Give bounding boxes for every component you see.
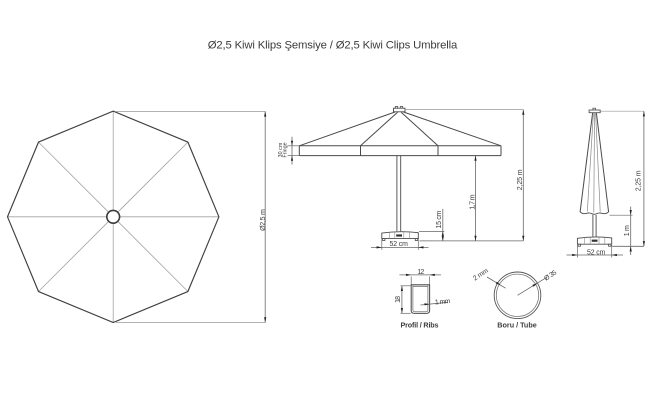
svg-text:1 mm: 1 mm (435, 298, 451, 306)
svg-text:15 cm: 15 cm (436, 211, 443, 229)
svg-text:Ø2,5 m: Ø2,5 m (260, 209, 267, 231)
svg-text:18: 18 (395, 296, 402, 303)
svg-text:52 cm: 52 cm (587, 249, 606, 256)
svg-text:Boru / Tube: Boru / Tube (497, 321, 536, 330)
svg-text:2,25 m: 2,25 m (517, 169, 524, 190)
svg-text:Ø2,5 Kiwi Klips Şemsiye / Ø2,5: Ø2,5 Kiwi Klips Şemsiye / Ø2,5 Kiwi Clip… (208, 39, 458, 51)
svg-text:52 cm: 52 cm (390, 241, 409, 248)
svg-text:1 m: 1 m (624, 225, 631, 236)
svg-text:12: 12 (417, 269, 424, 276)
svg-text:1,7 m: 1,7 m (469, 194, 476, 209)
svg-text:2,25 m: 2,25 m (636, 170, 643, 191)
svg-text:Fringe: Fringe (282, 142, 288, 157)
svg-text:Profil / Ribs: Profil / Ribs (401, 321, 439, 330)
